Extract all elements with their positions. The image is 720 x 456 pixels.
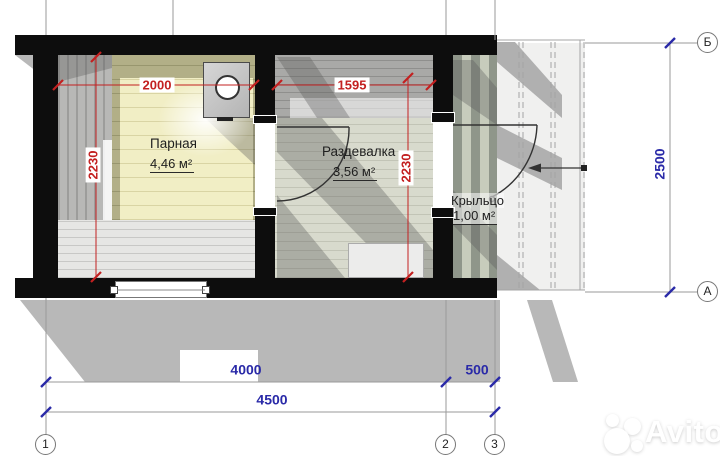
- axis-marker-1: 1: [35, 434, 56, 455]
- entry-arrow-icon: [528, 164, 587, 173]
- dim-main-width: 4000: [227, 363, 264, 378]
- dim-razdevalka-depth: 2230: [399, 151, 414, 186]
- room-porch-area: 1,00 м²: [453, 208, 497, 225]
- axis-marker-2: 2: [435, 434, 456, 455]
- avito-logo-icon: [604, 428, 630, 454]
- line-layer: [0, 0, 720, 456]
- dim-parnaya-width: 2000: [140, 78, 175, 93]
- room-porch-label: Крыльцо: [451, 193, 504, 208]
- dim-razdevalka-width: 1595: [335, 78, 370, 93]
- floor-plan-drawing: 2000 1595 2230 2230 2500 4000 500 4500 П…: [0, 0, 720, 456]
- axis-marker-B: Б: [697, 32, 718, 53]
- dim-porch-width: 500: [462, 363, 491, 378]
- dim-total-depth: 2500: [653, 145, 668, 182]
- axis-marker-A: А: [697, 281, 718, 302]
- dim-parnaya-depth: 2230: [86, 148, 101, 183]
- avito-logo-icon: [631, 440, 643, 452]
- avito-logo-icon: [606, 414, 619, 427]
- room-razdevalka-label: Раздевалка: [322, 144, 395, 159]
- avito-watermark: [600, 410, 720, 456]
- door-swing-entry: [453, 125, 537, 202]
- room-razdevalka-area: 3,56 м²: [333, 164, 377, 181]
- axis-marker-3: 3: [484, 434, 505, 455]
- dim-total-width: 4500: [253, 393, 290, 408]
- red-dim-ticks: [53, 52, 436, 282]
- room-parnaya-area: 4,46 м²: [150, 156, 194, 173]
- room-parnaya-label: Парная: [150, 136, 197, 151]
- axis-lines: [46, 0, 697, 435]
